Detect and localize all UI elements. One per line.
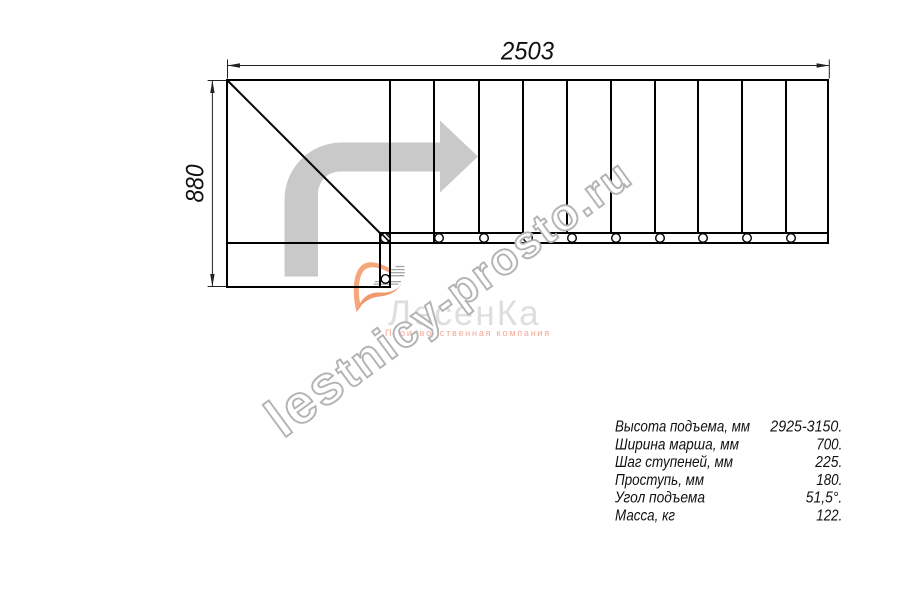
svg-text:Проступь, мм: Проступь, мм <box>615 472 704 489</box>
svg-text:2503: 2503 <box>500 38 554 66</box>
svg-text:880: 880 <box>182 164 210 202</box>
svg-text:Угол подъема: Угол подъема <box>614 490 705 507</box>
svg-text:225.: 225. <box>814 454 842 471</box>
svg-text:180.: 180. <box>816 472 842 489</box>
svg-text:51,5°.: 51,5°. <box>806 490 843 507</box>
svg-text:122.: 122. <box>816 507 842 524</box>
svg-text:Шаг ступеней, мм: Шаг ступеней, мм <box>615 454 733 471</box>
svg-text:Масса, кг: Масса, кг <box>615 507 675 524</box>
svg-text:2925-3150.: 2925-3150. <box>769 419 842 436</box>
svg-text:Ширина марша, мм: Ширина марша, мм <box>615 436 739 453</box>
svg-text:700.: 700. <box>816 436 842 453</box>
svg-text:Высота подъема, мм: Высота подъема, мм <box>615 419 750 436</box>
